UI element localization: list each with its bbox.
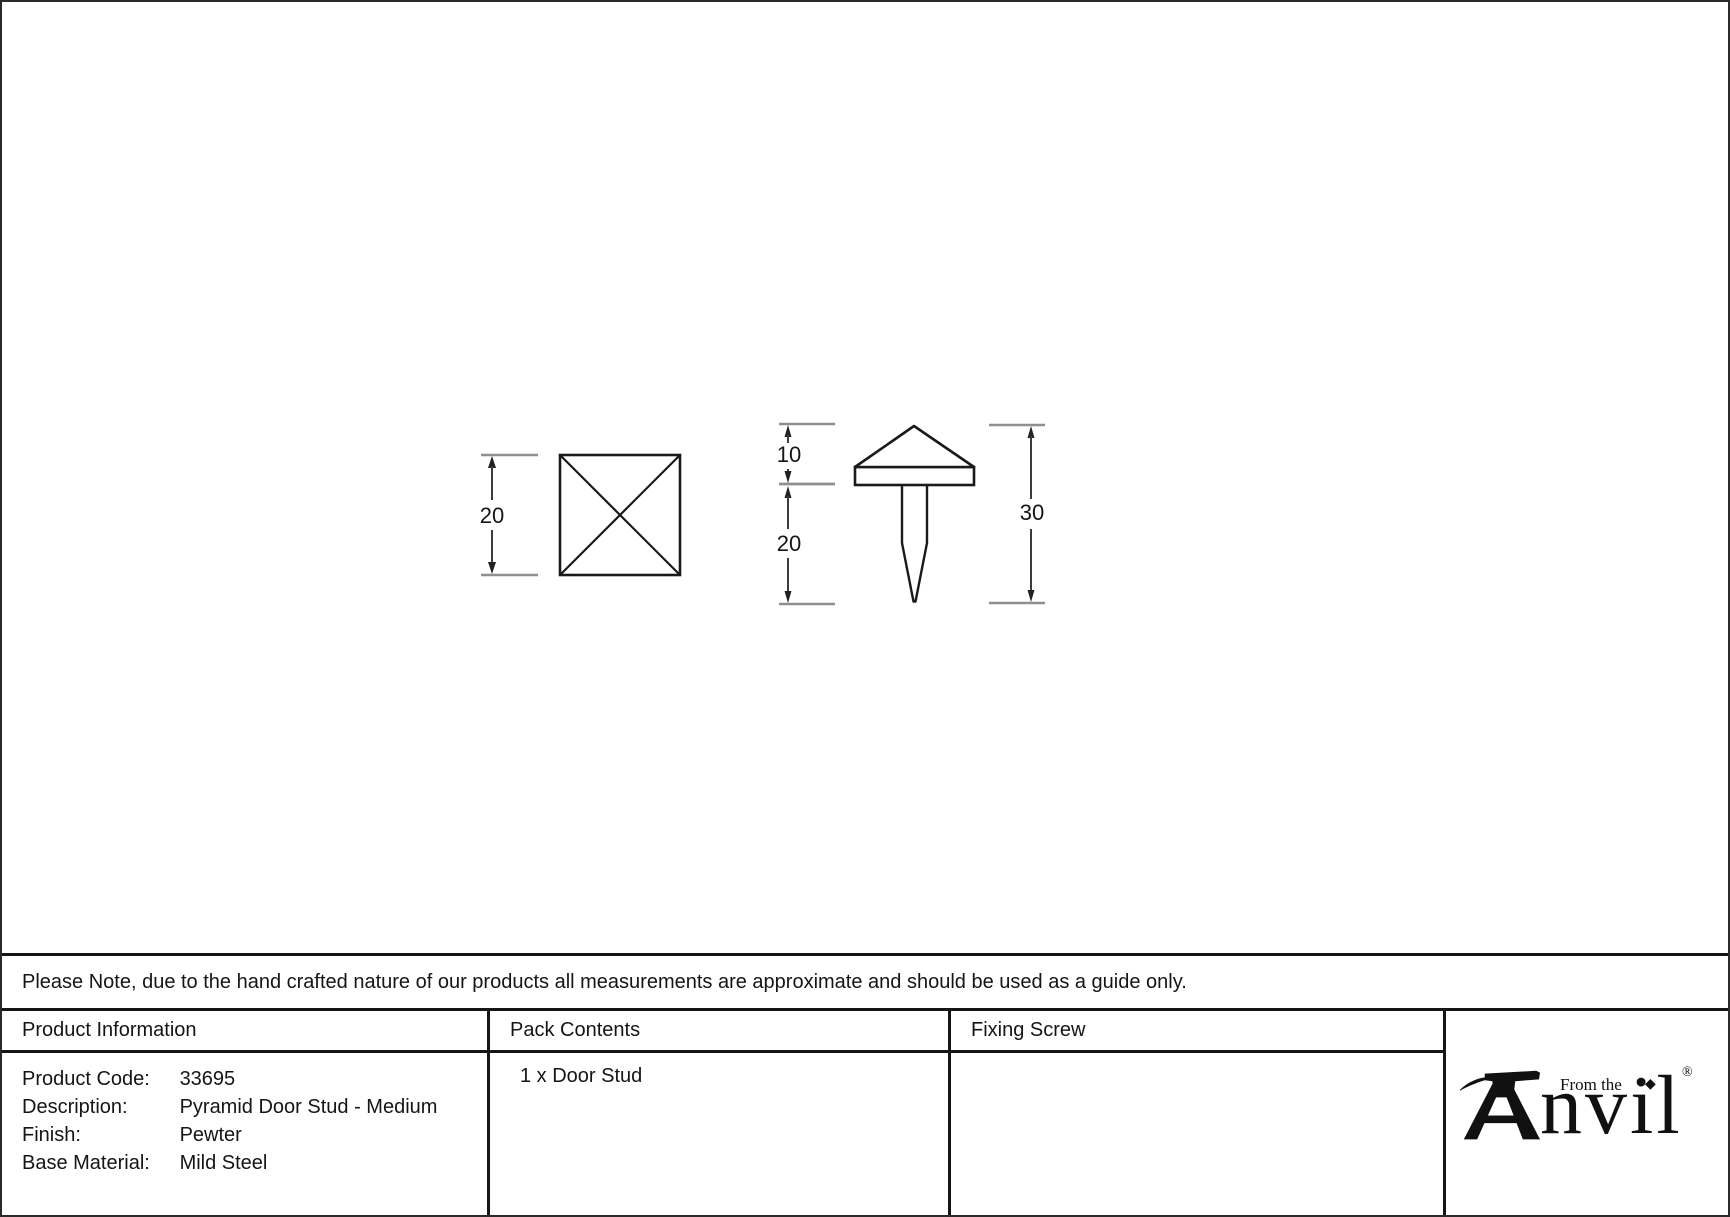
dimension-total-height: 30 — [989, 425, 1045, 603]
description-value: Pyramid Door Stud - Medium — [180, 1093, 438, 1121]
dim-label-pin-20: 20 — [777, 531, 801, 556]
dim-label-total-30: 30 — [1020, 500, 1044, 525]
side-view-drawing — [855, 426, 974, 602]
registered-trademark-icon: ® — [1682, 1065, 1693, 1081]
product-code-label: Product Code: — [22, 1065, 174, 1093]
product-information-column: Product Information Product Code: 33695 … — [2, 1011, 487, 1215]
base-material-label: Base Material: — [22, 1149, 174, 1177]
measurement-note-text: Please Note, due to the hand crafted nat… — [22, 971, 1187, 994]
fixing-screw-body — [951, 1053, 1443, 1065]
description-row: Description: Pyramid Door Stud - Medium — [22, 1093, 487, 1121]
technical-drawing-area: 20 10 — [2, 2, 1730, 953]
pack-contents-value: 1 x Door Stud — [520, 1065, 642, 1087]
top-view-drawing — [560, 455, 680, 575]
brand-logo-cell: From the ◆ nvil ® — [1443, 1011, 1728, 1215]
pack-contents-body: 1 x Door Stud — [490, 1053, 948, 1088]
product-code-value: 33695 — [180, 1065, 236, 1093]
finish-row: Finish: Pewter — [22, 1121, 487, 1149]
anvil-icon — [1460, 1069, 1540, 1143]
product-code-row: Product Code: 33695 — [22, 1065, 487, 1093]
product-information-body: Product Code: 33695 Description: Pyramid… — [2, 1053, 487, 1177]
product-spec-sheet: 20 10 — [0, 0, 1730, 1217]
spec-table-columns: Product Information Product Code: 33695 … — [2, 1011, 1728, 1215]
dim-label-top-view-20: 20 — [480, 503, 504, 528]
measurement-note-row: Please Note, due to the hand crafted nat… — [2, 953, 1728, 1011]
finish-label: Finish: — [22, 1121, 174, 1149]
product-information-header: Product Information — [2, 1011, 487, 1053]
base-material-row: Base Material: Mild Steel — [22, 1149, 487, 1177]
fixing-screw-column: Fixing Screw — [948, 1011, 1443, 1215]
spec-table: Please Note, due to the hand crafted nat… — [2, 953, 1728, 1215]
dimension-head-height: 10 — [777, 424, 835, 484]
dim-label-head-10: 10 — [777, 442, 801, 467]
technical-drawing-svg: 20 10 — [2, 2, 1730, 953]
pack-contents-header: Pack Contents — [490, 1011, 948, 1053]
dimension-pin-length: 20 — [777, 486, 835, 604]
description-label: Description: — [22, 1093, 174, 1121]
logo-wordmark-tail: nvil — [1540, 1064, 1683, 1148]
fixing-screw-header: Fixing Screw — [951, 1011, 1443, 1053]
pack-contents-column: Pack Contents 1 x Door Stud — [487, 1011, 948, 1215]
dimension-top-view-width: 20 — [480, 455, 538, 575]
finish-value: Pewter — [180, 1121, 242, 1149]
base-material-value: Mild Steel — [180, 1149, 268, 1177]
